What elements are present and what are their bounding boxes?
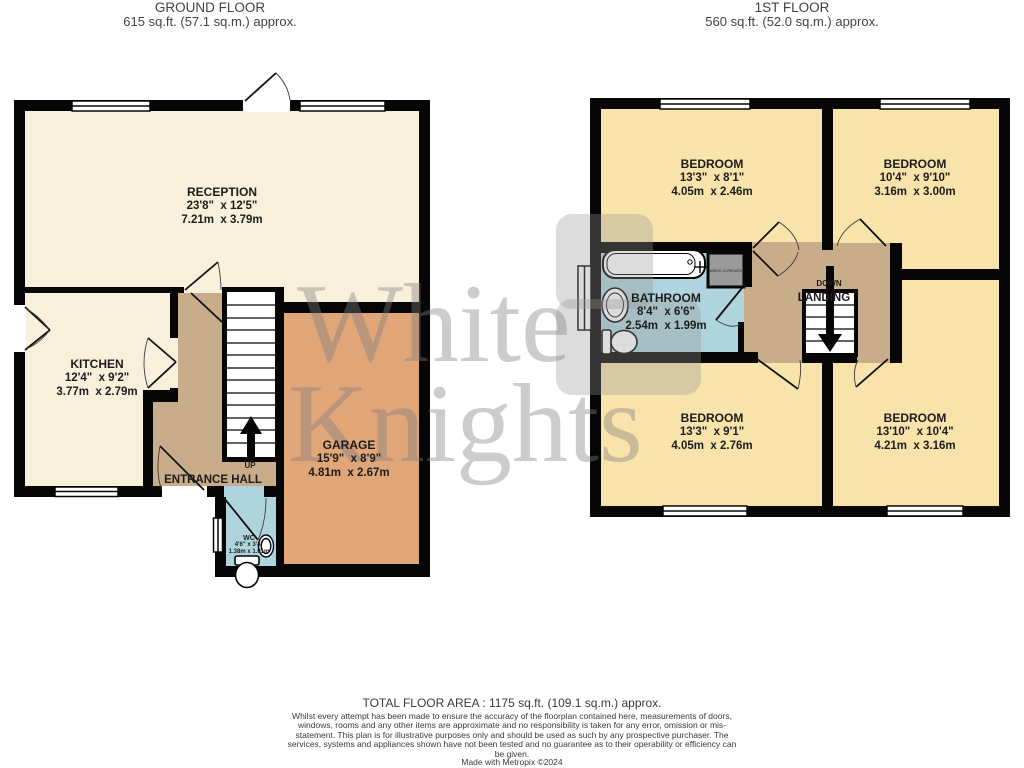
kitchen-name: KITCHEN	[17, 357, 177, 371]
first-floor-area: 560 sq.ft. (52.0 sq.m.) approx.	[622, 15, 962, 29]
bedroom-bl-door-opening	[758, 352, 802, 363]
bathroom-metric: 2.54m x 1.99m	[586, 319, 746, 333]
bedroom-metric: 4.05m x 2.46m	[632, 185, 792, 199]
bedroom-name: BEDROOM	[835, 411, 995, 425]
airing-cupboard: AIRING CUPBOARD	[708, 253, 744, 287]
reception-imperial: 23'8" x 12'5"	[132, 199, 312, 213]
reception-door-opening	[184, 287, 222, 293]
wc-metric: 1.38m x 1.01m	[219, 549, 279, 556]
ground-floor-title-block: GROUND FLOOR 615 sq.ft. (57.1 sq.m.) app…	[40, 1, 380, 28]
garage-metric: 4.81m x 2.67m	[269, 466, 429, 480]
reception-name: RECEPTION	[132, 185, 312, 199]
bedroom-name: BEDROOM	[835, 157, 995, 171]
kitchen-metric: 3.77m x 2.79m	[17, 385, 177, 399]
kitchen-label: KITCHEN 12'4" x 9'2" 3.77m x 2.79m	[17, 357, 177, 399]
reception-metric: 7.21m x 3.79m	[132, 213, 312, 227]
bedroom-metric: 3.16m x 3.00m	[835, 185, 995, 199]
ground-floor-title: GROUND FLOOR	[40, 1, 380, 15]
bathroom-label: BATHROOM 8'4" x 6'6" 2.54m x 1.99m	[586, 291, 746, 333]
airing-cupboard-label: AIRING CUPBOARD	[710, 269, 743, 273]
ground-floor-area: 615 sq.ft. (57.1 sq.m.) approx.	[40, 15, 380, 29]
bedroom-imperial: 10'4" x 9'10"	[835, 171, 995, 185]
bedroom-bottom-left-label: BEDROOM 13'3" x 9'1" 4.05m x 2.76m	[632, 411, 792, 453]
wc-imperial: 4'6" x 3'4"	[219, 542, 279, 549]
first-floor-title: 1ST FLOOR	[622, 1, 962, 15]
garage-name: GARAGE	[269, 438, 429, 452]
up-label: UP	[230, 461, 270, 470]
wc-name: WC	[219, 535, 279, 542]
garage-label: GARAGE 15'9" x 8'9" 4.81m x 2.67m	[269, 438, 429, 480]
down-label: DOWN	[804, 279, 854, 288]
bedroom-metric: 4.21m x 3.16m	[835, 439, 995, 453]
wc-label: WC 4'6" x 3'4" 1.38m x 1.01m	[219, 535, 279, 556]
total-floor-area: TOTAL FLOOR AREA : 1175 sq.ft. (109.1 sq…	[0, 696, 1024, 710]
bedroom-imperial: 13'3" x 8'1"	[632, 171, 792, 185]
first-floor-title-block: 1ST FLOOR 560 sq.ft. (52.0 sq.m.) approx…	[622, 1, 962, 28]
disclaimer-text: Whilst every attempt has been made to en…	[286, 712, 738, 759]
bedroom-imperial: 13'10" x 10'4"	[835, 425, 995, 439]
front-door-opening	[162, 486, 207, 497]
reception-label: RECEPTION 23'8" x 12'5" 7.21m x 3.79m	[132, 185, 312, 227]
entrance-hall-label: ENTRANCE HALL	[133, 474, 293, 486]
stairs-up	[222, 287, 280, 462]
patio-door-opening	[243, 100, 290, 112]
bedroom-imperial: 13'3" x 9'1"	[632, 425, 792, 439]
floorplan-page: AIRING CUPBOARD	[0, 0, 1024, 768]
bedroom-top-right-label: BEDROOM 10'4" x 9'10" 3.16m x 3.00m	[835, 157, 995, 199]
wc-toilet	[235, 556, 259, 588]
bedroom-metric: 4.05m x 2.76m	[632, 439, 792, 453]
french-door-opening	[13, 305, 26, 352]
bedroom-name: BEDROOM	[632, 157, 792, 171]
wc-door-opening	[224, 486, 264, 497]
garage-imperial: 15'9" x 8'9"	[269, 452, 429, 466]
bedroom-bottom-right-label: BEDROOM 13'10" x 10'4" 4.21m x 3.16m	[835, 411, 995, 453]
kitchen-imperial: 12'4" x 9'2"	[17, 371, 177, 385]
bedroom-top-left-label: BEDROOM 13'3" x 8'1" 4.05m x 2.46m	[632, 157, 792, 199]
landing-label: LANDING	[784, 292, 864, 304]
bedroom-name: BEDROOM	[632, 411, 792, 425]
bathroom-imperial: 8'4" x 6'6"	[586, 305, 746, 319]
metropix-credit: Made with Metropix ©2024	[0, 757, 1024, 767]
bathroom-name: BATHROOM	[586, 291, 746, 305]
